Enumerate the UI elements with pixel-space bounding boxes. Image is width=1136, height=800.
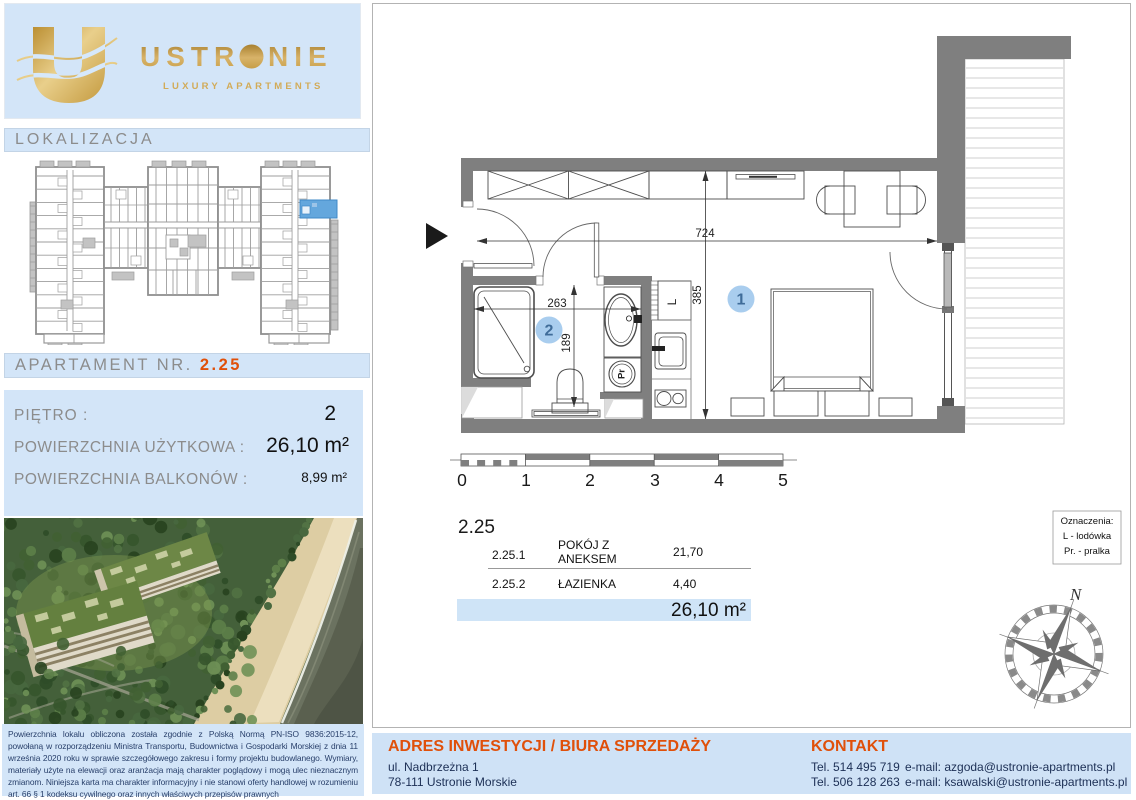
svg-text:2.25.2: 2.25.2 [492,577,526,591]
svg-text:POKÓJ Z: POKÓJ Z [558,537,609,552]
svg-text:189: 189 [561,333,573,352]
svg-text:4: 4 [714,470,724,490]
svg-text:ANEKSEM: ANEKSEM [558,552,617,566]
svg-text:5: 5 [778,470,788,490]
svg-text:2: 2 [585,470,595,490]
svg-text:26,10 m²: 26,10 m² [671,600,746,621]
svg-text:ŁAZIENKA: ŁAZIENKA [558,577,616,591]
svg-text:385: 385 [692,285,704,304]
svg-text:L - lodówka: L - lodówka [1063,531,1112,542]
svg-text:1: 1 [521,470,531,490]
svg-text:Pr: Pr [617,369,628,379]
svg-text:2.25: 2.25 [458,517,495,538]
svg-text:3: 3 [650,470,660,490]
svg-text:2: 2 [545,323,554,340]
svg-text:Oznaczenia:: Oznaczenia: [1061,516,1114,527]
svg-text:1: 1 [737,292,746,309]
svg-text:21,70: 21,70 [673,545,703,559]
svg-text:L: L [665,298,679,305]
svg-text:2.25.1: 2.25.1 [492,548,526,562]
svg-text:N: N [1069,585,1083,604]
svg-text:Pr. - pralka: Pr. - pralka [1064,546,1111,557]
svg-text:4,40: 4,40 [673,577,697,591]
svg-text:263: 263 [547,298,566,310]
svg-text:0: 0 [457,470,467,490]
